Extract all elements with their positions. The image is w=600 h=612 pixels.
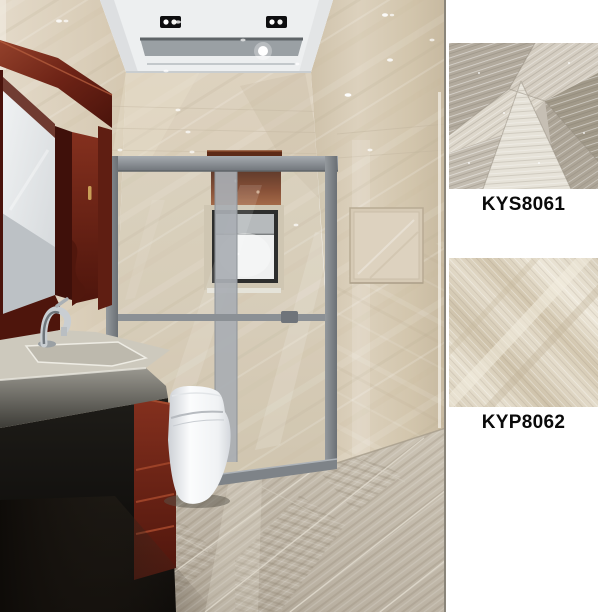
wall-corner-highlight — [438, 92, 441, 428]
shower-door-handle — [281, 311, 298, 323]
ceiling-spotlight — [266, 16, 287, 28]
tile-sample-2: KYP8062 — [449, 258, 598, 434]
ceiling-recess — [100, 0, 333, 72]
bathroom-render — [0, 0, 446, 612]
tile-sample-code: KYS8061 — [449, 194, 598, 216]
tile-swatch-kys-image — [449, 43, 598, 189]
shower-frame-right-post — [325, 156, 337, 468]
tile-sample-code: KYP8062 — [449, 412, 598, 434]
ceiling-downlight — [254, 42, 272, 60]
cabinet-handle — [88, 186, 92, 200]
shower-frame-top — [106, 156, 338, 171]
tile-catalog-page: KYS8061 — [0, 0, 600, 612]
render-right-edge — [444, 0, 446, 612]
tile-sample-1: KYS8061 — [449, 43, 598, 216]
wall-niche — [350, 208, 423, 283]
tile-swatch-kyp-image — [449, 258, 598, 407]
